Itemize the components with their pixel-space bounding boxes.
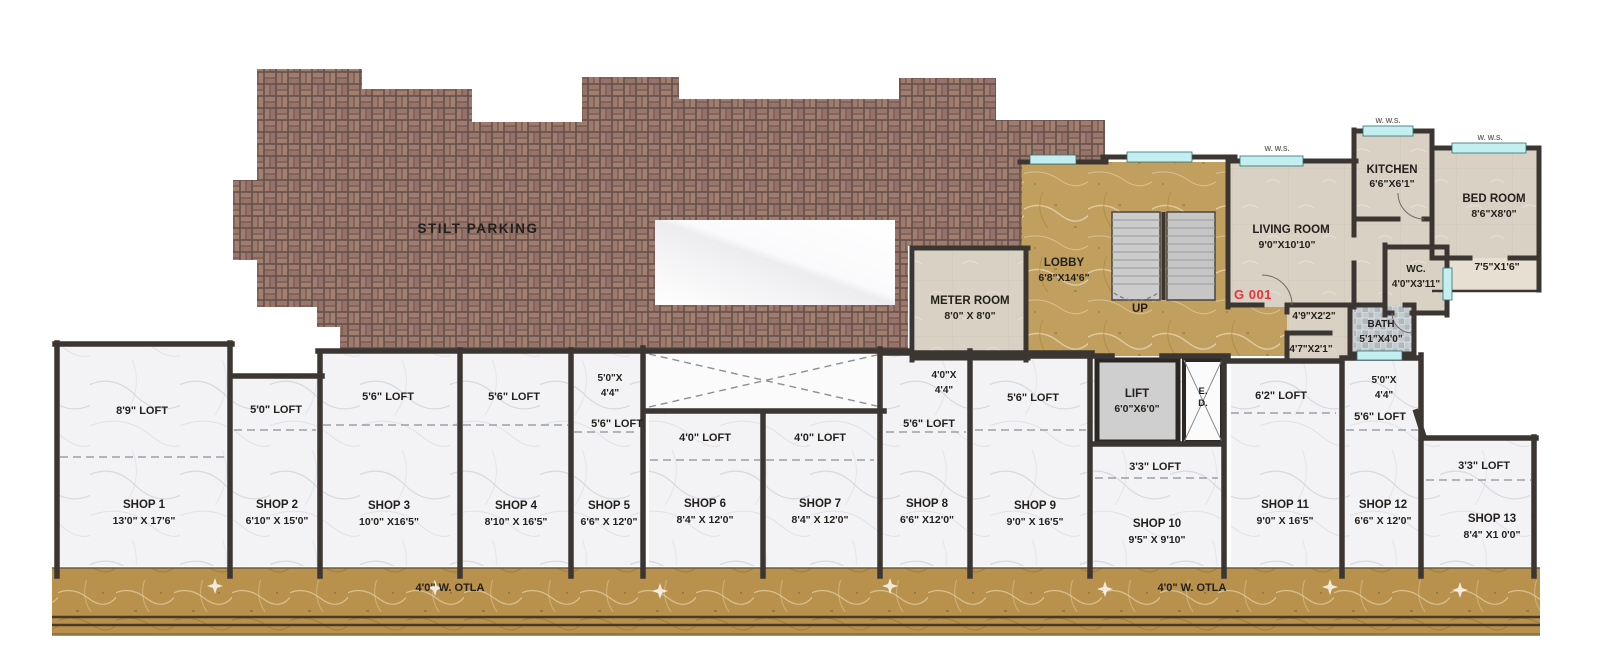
- kitchen-floor: [1354, 131, 1432, 221]
- living-room-size: 9'0"X10'10": [1259, 239, 1316, 251]
- lobby-name: LOBBY: [1044, 257, 1085, 269]
- shop-2-size: 6'10" X 15'0": [246, 515, 309, 527]
- meter-room-size: 8'0" X 8'0": [944, 310, 995, 322]
- bed-room-name: BED ROOM: [1462, 193, 1525, 205]
- shop-8-size: 6'6" X12'0": [900, 514, 954, 526]
- shop-12-name: SHOP 12: [1359, 499, 1407, 511]
- shop-7-size: 8'4" X 12'0": [792, 514, 849, 526]
- parking-label: STILT PARKING: [418, 221, 539, 236]
- lobby-window: [1030, 155, 1076, 164]
- shop-9-floor: [973, 355, 1087, 566]
- shop-1-size: 13'0" X 17'6": [113, 515, 176, 527]
- shop-12-size: 6'6" X 12'0": [1355, 515, 1412, 527]
- window-note-living: W. W.S.: [1265, 146, 1290, 153]
- bath-window: [1357, 351, 1402, 360]
- shop-8-niche-2: 4'4": [935, 385, 954, 396]
- shop-7-loft: 4'0" LOFT: [794, 432, 846, 444]
- balcony-size: 7'5"X1'6": [1474, 261, 1519, 273]
- living-room-window: [1240, 156, 1303, 166]
- shop-10-loft: 3'3" LOFT: [1129, 461, 1181, 473]
- shop-9-loft: 5'6" LOFT: [1007, 392, 1059, 404]
- wc-size: 4'0"X3'11": [1392, 279, 1440, 290]
- wc-name: WC.: [1406, 264, 1426, 275]
- shop-12-loft: 5'6" LOFT: [1354, 411, 1406, 423]
- lobby-size: 6'8"X14'6": [1038, 272, 1089, 284]
- shop-5-loft: 5'6" LOFT: [591, 418, 643, 430]
- kitchen-size: 6'6"X6'1": [1369, 178, 1414, 190]
- shop-2-name: SHOP 2: [256, 499, 298, 511]
- bed-room-window: [1452, 143, 1526, 153]
- lift-size: 6'0"X6'0": [1114, 403, 1159, 415]
- shop-13-size: 8'4" X1 0'0": [1464, 529, 1521, 541]
- floor-plan: STILT PARKING: [0, 0, 1600, 659]
- otla-label-left: 4'0" W. OTLA: [416, 582, 485, 594]
- shop-10-name: SHOP 10: [1133, 518, 1181, 530]
- open-area-cross: [646, 351, 884, 410]
- flat-number: G 001: [1234, 287, 1272, 302]
- shop-4-size: 8'10" X 16'5": [485, 516, 548, 528]
- electrical-duct: E. D.: [1184, 360, 1222, 442]
- shop-5-name: SHOP 5: [588, 500, 631, 512]
- window-note-kitchen: W. W.S.: [1376, 118, 1401, 125]
- staircase: UP: [1112, 212, 1215, 315]
- shop-13-floor: [1424, 440, 1532, 566]
- stair-up-label: UP: [1132, 303, 1148, 315]
- shop-8-niche-1: 4'0"X: [932, 370, 957, 381]
- shop-10-size: 9'5" X 9'10": [1129, 534, 1186, 546]
- shop-5-size: 6'6" X 12'0": [581, 516, 638, 528]
- shop-5-niche-1: 5'0"X: [598, 373, 623, 384]
- shop-11-size: 9'0" X 16'5": [1257, 515, 1314, 527]
- shop-9-size: 9'0" X 16'5": [1007, 516, 1064, 528]
- shop-8-loft: 5'6" LOFT: [903, 418, 955, 430]
- lift-shaft: [1097, 360, 1178, 442]
- lift-label: LIFT: [1125, 388, 1149, 400]
- duct-label-e: E.: [1199, 386, 1208, 397]
- shop-1-loft: 8'9" LOFT: [116, 405, 168, 417]
- floor-plan-svg: STILT PARKING: [0, 0, 1600, 659]
- shop-3-loft: 5'6" LOFT: [362, 391, 414, 403]
- shop-3-size: 10'0" X16'5": [359, 516, 419, 528]
- passage-1-size: 4'9"X2'2": [1292, 311, 1335, 322]
- shop-2-loft: 5'0" LOFT: [250, 404, 302, 416]
- shop-4-loft: 5'6" LOFT: [488, 391, 540, 403]
- open-area: [646, 351, 884, 410]
- shop-7-name: SHOP 7: [799, 498, 841, 510]
- shop-4-floor: [463, 353, 568, 566]
- kitchen-name: KITCHEN: [1366, 164, 1417, 176]
- shop-1-floor: [58, 346, 227, 566]
- shop-6-loft: 4'0" LOFT: [679, 432, 731, 444]
- living-room-name: LIVING ROOM: [1252, 224, 1329, 236]
- shop-4-name: SHOP 4: [495, 500, 538, 512]
- shop-8-floor: [883, 355, 967, 566]
- shop-5-niche-2: 4'4": [601, 388, 620, 399]
- shop-6-name: SHOP 6: [684, 498, 726, 510]
- window-note-bedroom: W. W.S.: [1478, 135, 1503, 142]
- shop-3-floor: [323, 353, 457, 566]
- shop-3-name: SHOP 3: [368, 500, 410, 512]
- otla-strip: 4'0" W. OTLA 4'0" W. OTLA: [52, 568, 1540, 636]
- shop-9-name: SHOP 9: [1014, 500, 1056, 512]
- stair-flight-right: [1167, 212, 1215, 300]
- kitchen-window: [1363, 126, 1413, 136]
- shop-6-size: 8'4" X 12'0": [677, 514, 734, 526]
- shop-12-niche-1: 5'0"X: [1372, 375, 1397, 386]
- lift: LIFT 6'0"X6'0": [1097, 360, 1178, 442]
- stair-flight-left: [1112, 212, 1160, 300]
- stair-window: [1127, 152, 1192, 162]
- shop-13-loft: 3'3" LOFT: [1458, 460, 1510, 472]
- bath-name: BATH: [1367, 319, 1394, 330]
- bed-room-size: 8'6"X8'0": [1471, 208, 1516, 220]
- shop-8-name: SHOP 8: [906, 498, 949, 510]
- otla-label-right: 4'0" W. OTLA: [1158, 582, 1227, 594]
- bath-floor: [1350, 305, 1414, 356]
- shop-12-niche-2: 4'4": [1375, 390, 1394, 401]
- shop-13-name: SHOP 13: [1468, 513, 1516, 525]
- meter-room-name: METER ROOM: [930, 295, 1009, 307]
- shop-1-name: SHOP 1: [123, 499, 166, 511]
- shop-11-loft: 6'2" LOFT: [1255, 390, 1307, 402]
- wc-window: [1443, 268, 1452, 300]
- parking-open-bay: [655, 220, 895, 305]
- passage-2-size: 4'7"X2'1": [1289, 344, 1332, 355]
- shop-11-name: SHOP 11: [1261, 499, 1309, 511]
- shop-5-floor: [574, 353, 640, 566]
- bath-size: 5'1"X4'0": [1359, 334, 1402, 345]
- duct-label-d: D.: [1198, 398, 1208, 409]
